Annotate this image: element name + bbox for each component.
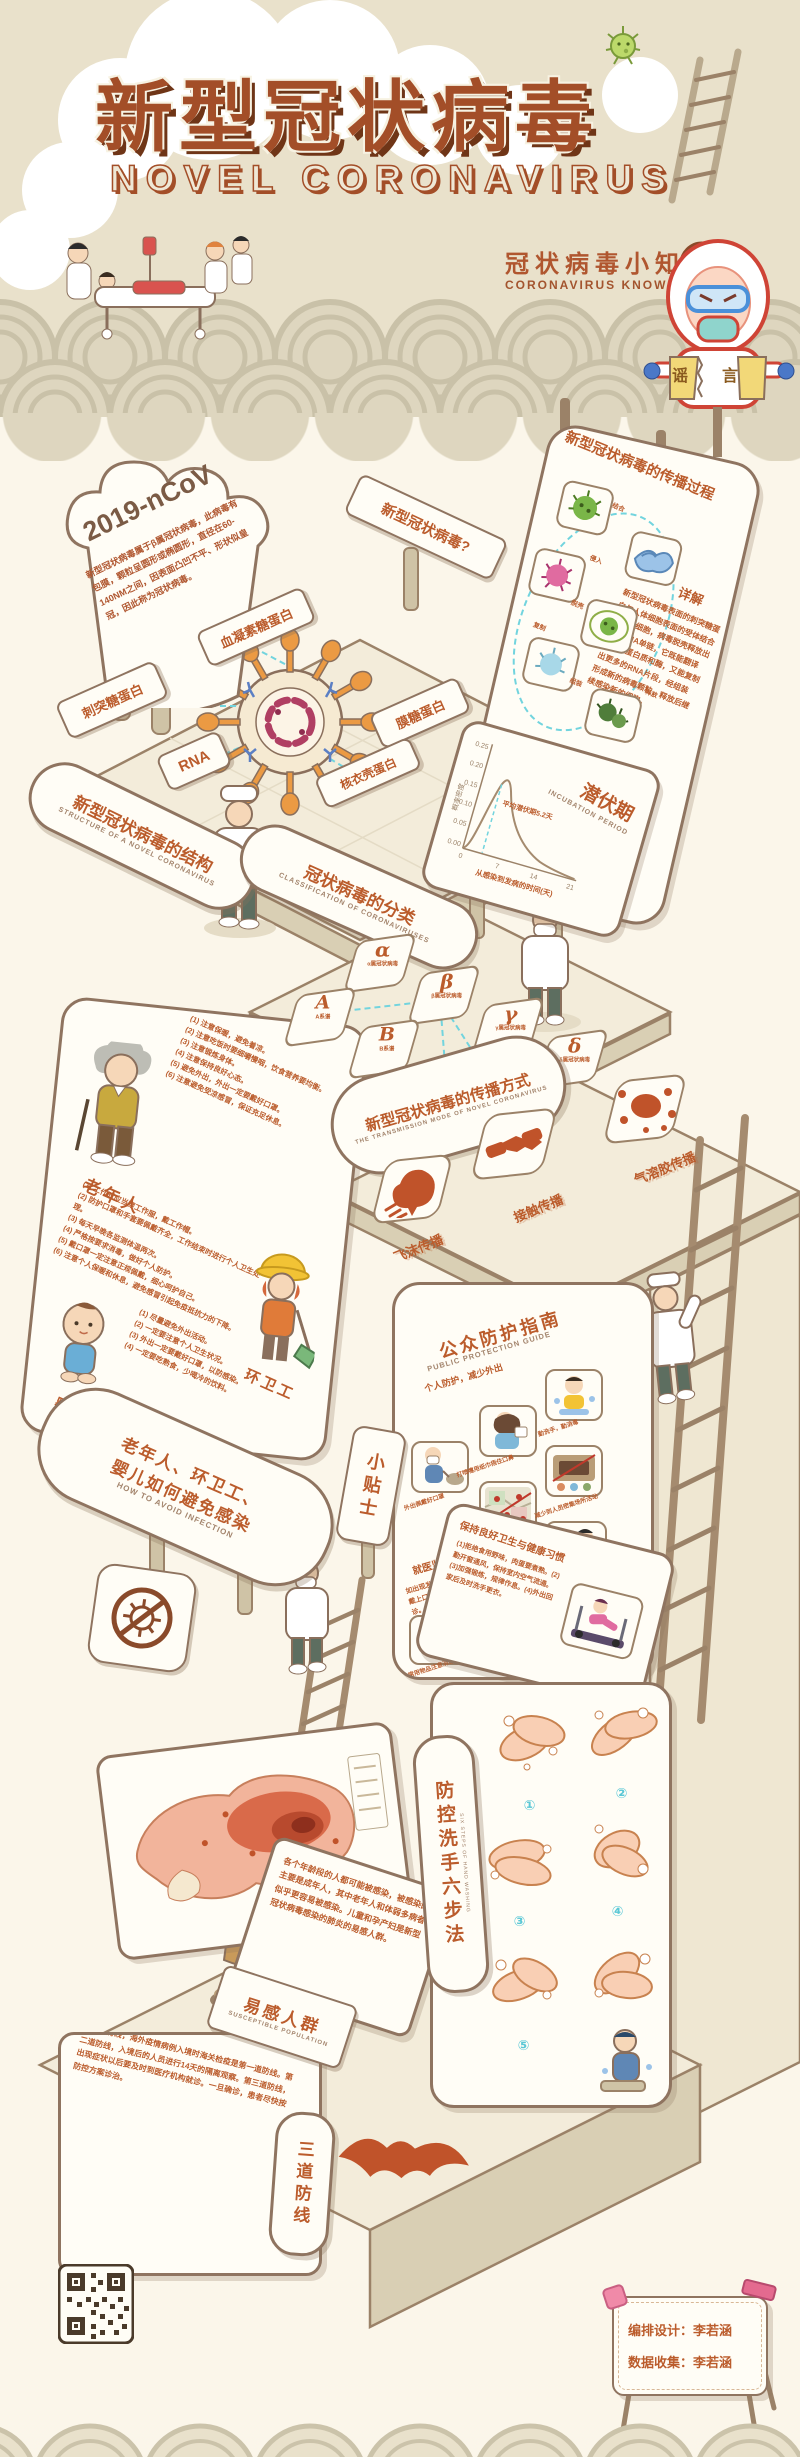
page-title: 新型冠状病毒 (95, 55, 599, 167)
credits-inner-border (618, 2302, 762, 2390)
genus-caption: β属冠状病毒 (419, 992, 475, 1000)
elderly-illustration (67, 1038, 175, 1177)
svg-text:14: 14 (529, 873, 539, 882)
handwash-step-number: ① (487, 1797, 572, 1814)
svg-text:0.05: 0.05 (452, 818, 467, 829)
spread-step-tile (554, 479, 615, 537)
handwash-step-number: ② (579, 1785, 664, 1802)
genus-letter: γ (483, 1004, 539, 1024)
handwash-step: ② (579, 1685, 664, 1802)
genus-letter: α (355, 940, 411, 960)
guide-tile-crowd (545, 1445, 603, 1497)
defense-sign-label: 三道防线 (286, 2139, 317, 2229)
defense-body: 第一道防线，海外疫情病例入境时海关检疫是第一道防线。第二道防线，入境后的人员进行… (72, 2032, 297, 2125)
handwash-step-number: ④ (575, 1903, 660, 1920)
guide-tile-mask (411, 1441, 469, 1493)
virus-doodle-icon (600, 22, 646, 68)
gym-tile (558, 1581, 645, 1661)
svg-text:7: 7 (494, 863, 500, 871)
poster-root: 新型冠状病毒 NOVEL CORONAVIRUS 冠状病毒小知识 CORONAV… (0, 0, 800, 2457)
mode-tile-contact (470, 1107, 558, 1181)
lineage-letter: A (295, 994, 351, 1013)
svg-text:平均潜伏期5.2天: 平均潜伏期5.2天 (501, 799, 554, 822)
tips-sign-label: 小贴士 (352, 1450, 390, 1522)
genus-letter: β (419, 972, 475, 992)
genus-letter: δ (547, 1036, 603, 1056)
washing-person (591, 2023, 661, 2103)
mode-tile-aerosol (602, 1073, 688, 1144)
handwash-step: ④ (575, 1803, 660, 1920)
incubation-chart: 0.25 0.20 0.15 0.10 0.05 0.00 0 7 14 21 … (429, 728, 615, 914)
svg-text:0: 0 (458, 852, 464, 860)
medics-illustration (55, 225, 255, 345)
lineage-caption: B系谱 (359, 1045, 415, 1053)
rumor-paper-text: 谣言 (672, 362, 772, 386)
lineage-caption: A系谱 (295, 1013, 351, 1021)
svg-text:21: 21 (565, 883, 575, 892)
bottom-wave-pattern (0, 2390, 800, 2457)
svg-text:0.00: 0.00 (446, 838, 461, 849)
lineage-letter: B (359, 1026, 415, 1045)
genus-caption: α属冠状病毒 (355, 960, 411, 968)
spread-step-tile (623, 529, 684, 587)
handwash-step-number: ⑤ (481, 2037, 566, 2054)
svg-text:0.20: 0.20 (469, 760, 484, 771)
page-title-en: NOVEL CORONAVIRUS (110, 158, 675, 200)
genus-caption: γ属冠状病毒 (483, 1024, 539, 1032)
mode-tile-droplet (370, 1153, 454, 1224)
credits-board: 编排设计：李若涵 数据收集：李若涵 (612, 2296, 768, 2396)
no-virus-sign (86, 1562, 199, 1675)
credit-data: 数据收集：李若涵 (628, 2352, 732, 2371)
svg-text:0.25: 0.25 (474, 741, 489, 752)
spread-step-tile (582, 686, 643, 744)
defense-sign: 三道防线 (267, 2110, 337, 2258)
handwash-step: ③ (477, 1813, 562, 1930)
hazmat-figure (640, 235, 800, 465)
guide-tile-wash (545, 1369, 603, 1421)
baby-illustration (41, 1290, 121, 1397)
handwash-step-number: ③ (477, 1913, 562, 1930)
svg-text:0.15: 0.15 (463, 779, 478, 790)
spread-step-tile (526, 546, 587, 604)
handwash-step: ⑤ (481, 1937, 566, 2054)
spread-step-tile (578, 597, 639, 655)
header-ladder (650, 40, 760, 210)
credit-design: 编排设计：李若涵 (628, 2320, 732, 2339)
handwash-step: ① (487, 1697, 572, 1814)
guide-tile-sneeze (479, 1405, 537, 1457)
qr-code (58, 2264, 134, 2344)
no-virus-icon (102, 1578, 181, 1657)
svg-text:概率密度: 概率密度 (450, 782, 466, 811)
label-text: RNA (176, 747, 213, 776)
